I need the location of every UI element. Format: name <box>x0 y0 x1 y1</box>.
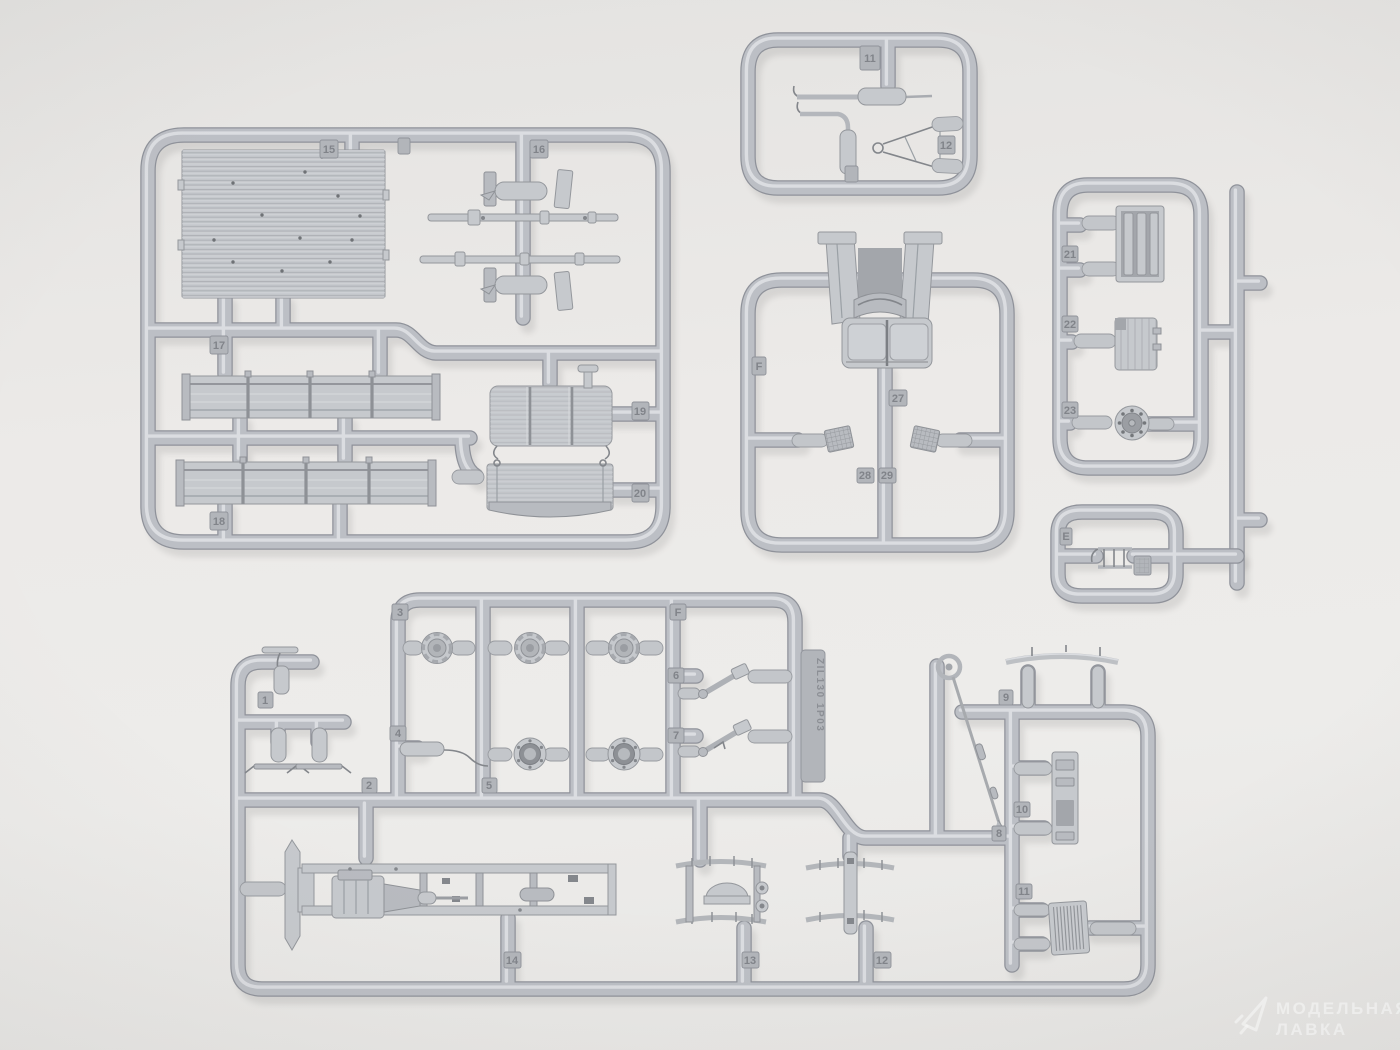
sprue-chassis-main: ZIL130 1P03 1 2 3 4 5 F 6 7 8 9 10 11 12… <box>236 598 1148 989</box>
part-bed-floor <box>178 150 389 298</box>
svg-text:2: 2 <box>366 780 372 792</box>
svg-text:F: F <box>756 361 763 373</box>
watermark-line1: МОДЕЛЬНАЯ <box>1276 999 1400 1018</box>
svg-text:18: 18 <box>213 516 225 528</box>
part-rear-axle <box>806 852 894 934</box>
svg-text:12: 12 <box>876 955 888 967</box>
svg-text:5: 5 <box>486 780 492 792</box>
part-windshield-frame <box>1006 645 1118 708</box>
svg-text:21: 21 <box>1064 249 1076 261</box>
part-radiator-core <box>1082 206 1164 282</box>
svg-text:11: 11 <box>864 53 876 65</box>
watermark: МОДЕЛЬНАЯ ЛАВКА <box>1236 998 1400 1039</box>
svg-text:7: 7 <box>673 730 679 742</box>
sprue-cab-interior: F 27 28 29 <box>746 232 1007 545</box>
svg-text:4: 4 <box>395 728 402 740</box>
mold-text-tag: ZIL130 1P03 <box>801 650 825 782</box>
paper-plane-logo-icon <box>1236 998 1266 1033</box>
watermark-line2: ЛАВКА <box>1276 1020 1348 1039</box>
sprue-photo: 15 16 17 18 19 20 11 12 <box>0 0 1400 1050</box>
svg-text:12: 12 <box>940 140 952 152</box>
part-front-axle <box>676 856 768 924</box>
svg-text:22: 22 <box>1064 319 1076 331</box>
svg-text:17: 17 <box>213 340 225 352</box>
part-bed-side-2 <box>176 457 436 506</box>
svg-text:10: 10 <box>1016 804 1028 816</box>
svg-text:27: 27 <box>892 393 904 405</box>
part-cab-floor-seats <box>818 232 942 368</box>
svg-text:20: 20 <box>634 488 646 500</box>
svg-text:3: 3 <box>397 607 403 619</box>
svg-text:ZIL130 1P03: ZIL130 1P03 <box>814 658 825 732</box>
svg-text:1: 1 <box>262 695 268 707</box>
svg-text:19: 19 <box>634 406 646 418</box>
svg-text:13: 13 <box>744 955 756 967</box>
part-battery-box <box>1074 318 1161 370</box>
svg-text:28: 28 <box>859 470 871 482</box>
svg-text:23: 23 <box>1064 405 1076 417</box>
svg-text:11: 11 <box>1018 886 1030 898</box>
svg-text:16: 16 <box>533 144 545 156</box>
svg-text:15: 15 <box>323 144 335 156</box>
svg-text:8: 8 <box>996 828 1002 840</box>
part-radiator-grille <box>1014 901 1136 956</box>
svg-text:9: 9 <box>1003 692 1009 704</box>
svg-text:F: F <box>675 607 682 619</box>
svg-text:E: E <box>1062 531 1069 543</box>
part-bed-side-1 <box>182 371 440 420</box>
part-chassis-frame <box>240 840 616 950</box>
photo-canvas: 15 16 17 18 19 20 11 12 <box>0 0 1400 1050</box>
part-bent-rod <box>797 102 856 174</box>
sprue-bed-parts: 15 16 17 18 19 20 <box>146 133 663 542</box>
sprue-exhaust-small: 11 12 <box>746 38 970 188</box>
svg-text:29: 29 <box>881 470 893 482</box>
part-muffler-pipe <box>794 86 932 105</box>
svg-text:6: 6 <box>673 670 679 682</box>
svg-text:14: 14 <box>506 955 519 967</box>
